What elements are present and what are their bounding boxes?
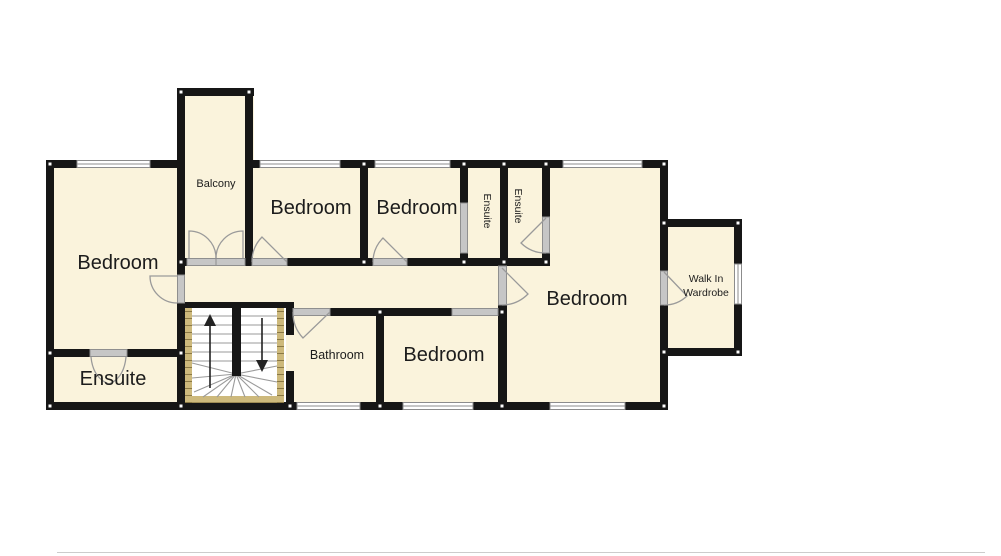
door-balcony-right-leaf — [216, 259, 245, 266]
door-bedroom-top-left — [252, 259, 287, 266]
door-balcony-left-leaf — [187, 259, 216, 266]
door-bathroom — [293, 309, 330, 316]
label-ensuite-2: Ensuite — [512, 188, 524, 223]
label-bedroom-right: Bedroom — [546, 288, 627, 310]
label-walk-in-wardrobe-line2: Wardrobe — [683, 287, 729, 299]
label-balcony: Balcony — [196, 178, 236, 190]
label-walk-in-wardrobe-line1: Walk In — [689, 273, 724, 285]
label-bedroom-top-right: Bedroom — [376, 197, 457, 219]
label-bedroom-bottom: Bedroom — [403, 344, 484, 366]
window — [563, 161, 642, 168]
window — [735, 264, 742, 304]
door-ensuite-2 — [543, 217, 550, 253]
window — [297, 403, 360, 410]
door-walk-in-wardrobe — [661, 271, 668, 305]
door-bedroom-left — [178, 275, 185, 303]
door-ensuite-left — [90, 350, 127, 357]
opening-bedroom-bottom — [452, 309, 498, 316]
window — [550, 403, 625, 410]
label-ensuite-left: Ensuite — [80, 368, 147, 390]
window — [403, 403, 473, 410]
window — [77, 161, 150, 168]
label-ensuite-1: Ensuite — [481, 193, 493, 228]
floor-plan-svg: Bedroom Ensuite Balcony Bedroom Bedroom … — [0, 0, 1001, 556]
page-bottom-edge — [57, 552, 985, 553]
door-bedroom-top-right — [373, 259, 407, 266]
window — [260, 161, 340, 168]
window — [375, 161, 450, 168]
label-bedroom-top-left: Bedroom — [270, 197, 351, 219]
floor-plan-page: { "rooms": { "bedroom_left": "Bedroom", … — [0, 0, 1001, 556]
door-ensuite-1 — [461, 203, 468, 253]
label-bedroom-left: Bedroom — [77, 252, 158, 274]
label-bathroom: Bathroom — [310, 348, 364, 362]
